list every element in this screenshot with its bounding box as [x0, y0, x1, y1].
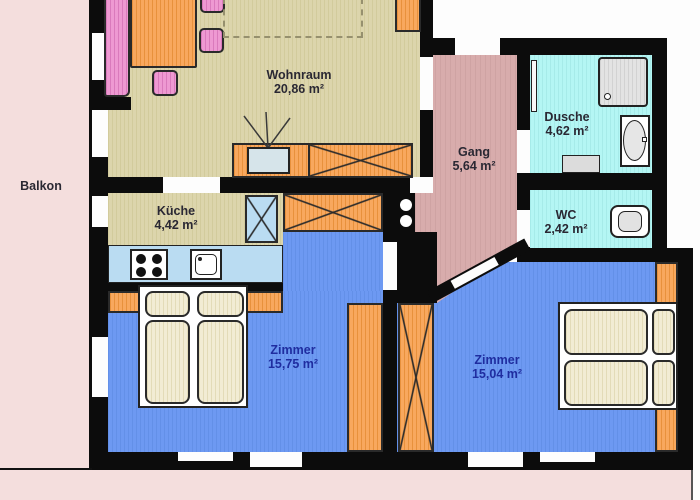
room-label-balkon: Balkon: [20, 179, 62, 193]
room-label-zimmer-links: Zimmer 15,75 m²: [268, 343, 318, 371]
hall-bath-wall: [517, 55, 530, 262]
pillow: [197, 291, 244, 317]
door-opening: [383, 242, 397, 290]
wc-name: WC: [544, 208, 587, 222]
bedroom-right-wall: [678, 250, 693, 468]
room-label-zimmer-rechts: Zimmer 15,04 m²: [472, 353, 522, 381]
dining-table: [130, 0, 197, 68]
terrace-strip: [0, 470, 691, 500]
cabinet: [395, 0, 421, 32]
gang-area: 5,64 m²: [452, 159, 495, 173]
zimmer-links-area: 15,75 m²: [268, 357, 318, 371]
pillow: [145, 291, 190, 317]
zimmer-rechts-name: Zimmer: [472, 353, 522, 367]
window: [92, 196, 108, 227]
kueche-name: Küche: [154, 204, 197, 218]
door-leaf: [531, 60, 537, 112]
washbasin: [620, 115, 650, 167]
fridge-crossed: [245, 195, 278, 243]
wohnraum-area: 20,86 m²: [266, 82, 331, 96]
gang-name: Gang: [452, 145, 495, 159]
burner-icon: [152, 267, 162, 277]
chimney-flue-icon: [400, 199, 412, 211]
nightstand: [652, 360, 675, 406]
bottom-exterior-wall: [92, 452, 693, 470]
drain-icon: [604, 93, 611, 100]
door-opening: [517, 130, 530, 173]
floor-plan: Balkon Wohnraum 20,86 m² Küche 4,42 m² G…: [0, 0, 700, 500]
wohnraum-name: Wohnraum: [266, 68, 331, 82]
window: [92, 337, 108, 397]
mattress: [564, 360, 648, 406]
double-bed: [138, 285, 248, 408]
wardrobe-crossed: [398, 303, 434, 452]
tap-icon: [642, 137, 647, 142]
tv-antenna-icon: [240, 112, 296, 148]
toilet-bowl: [618, 211, 642, 232]
room-label-dusche: Dusche 4,62 m²: [544, 110, 589, 138]
window: [468, 452, 523, 467]
balkon-name: Balkon: [20, 179, 62, 193]
living-hall-wall: [420, 0, 433, 193]
tv: [247, 147, 290, 174]
bedroom-left-floor-upper: [283, 232, 383, 291]
burner-icon: [152, 254, 162, 264]
window: [178, 452, 233, 461]
terrace-right-line: [691, 470, 693, 500]
zimmer-rechts-area: 15,04 m²: [472, 367, 522, 381]
pass-through-opening: [163, 177, 220, 193]
balcony-area: [0, 0, 89, 468]
sofa: [104, 0, 130, 97]
double-bed: [558, 302, 678, 410]
shower-tray: [598, 57, 648, 107]
sideboard-crossed: [308, 143, 413, 178]
bedroom-divider-wall: [383, 232, 397, 468]
window: [92, 110, 108, 157]
room-label-wc: WC 2,42 m²: [544, 208, 587, 236]
living-south-wall: [92, 177, 433, 193]
window: [250, 452, 302, 467]
chair: [200, 0, 225, 13]
room-label-kueche: Küche 4,42 m²: [154, 204, 197, 232]
dusche-area: 4,62 m²: [544, 124, 589, 138]
roof-slope-dashed-line: [223, 0, 363, 38]
entrance-door-opening: [455, 38, 500, 55]
wardrobe-crossed: [283, 193, 383, 232]
bath-right-wall: [652, 38, 667, 255]
chair: [152, 70, 178, 96]
chimney-flue-icon: [400, 215, 412, 227]
door-opening: [410, 177, 433, 193]
wall-pier: [103, 97, 131, 110]
window: [540, 452, 595, 462]
zimmer-links-name: Zimmer: [268, 343, 318, 357]
shower-wc-wall: [530, 173, 652, 190]
burner-icon: [136, 254, 146, 264]
burner-icon: [136, 267, 146, 277]
dusche-name: Dusche: [544, 110, 589, 124]
toilet: [610, 205, 650, 238]
mattress: [564, 309, 648, 355]
bath-cabinet: [562, 155, 600, 173]
top-exterior-wall: [420, 38, 667, 55]
chimney: [383, 193, 415, 232]
sink: [190, 249, 222, 280]
mattress: [197, 320, 244, 404]
stove: [130, 249, 168, 280]
tap-icon: [198, 257, 202, 261]
room-label-gang: Gang 5,64 m²: [452, 145, 495, 173]
kueche-area: 4,42 m²: [154, 218, 197, 232]
room-label-wohnraum: Wohnraum 20,86 m²: [266, 68, 331, 96]
door-opening: [420, 57, 433, 110]
nightstand: [652, 309, 675, 355]
wardrobe: [347, 303, 383, 452]
chair: [199, 28, 224, 53]
wc-south-wall: [517, 248, 693, 262]
mattress: [145, 320, 190, 404]
wc-area: 2,42 m²: [544, 222, 587, 236]
